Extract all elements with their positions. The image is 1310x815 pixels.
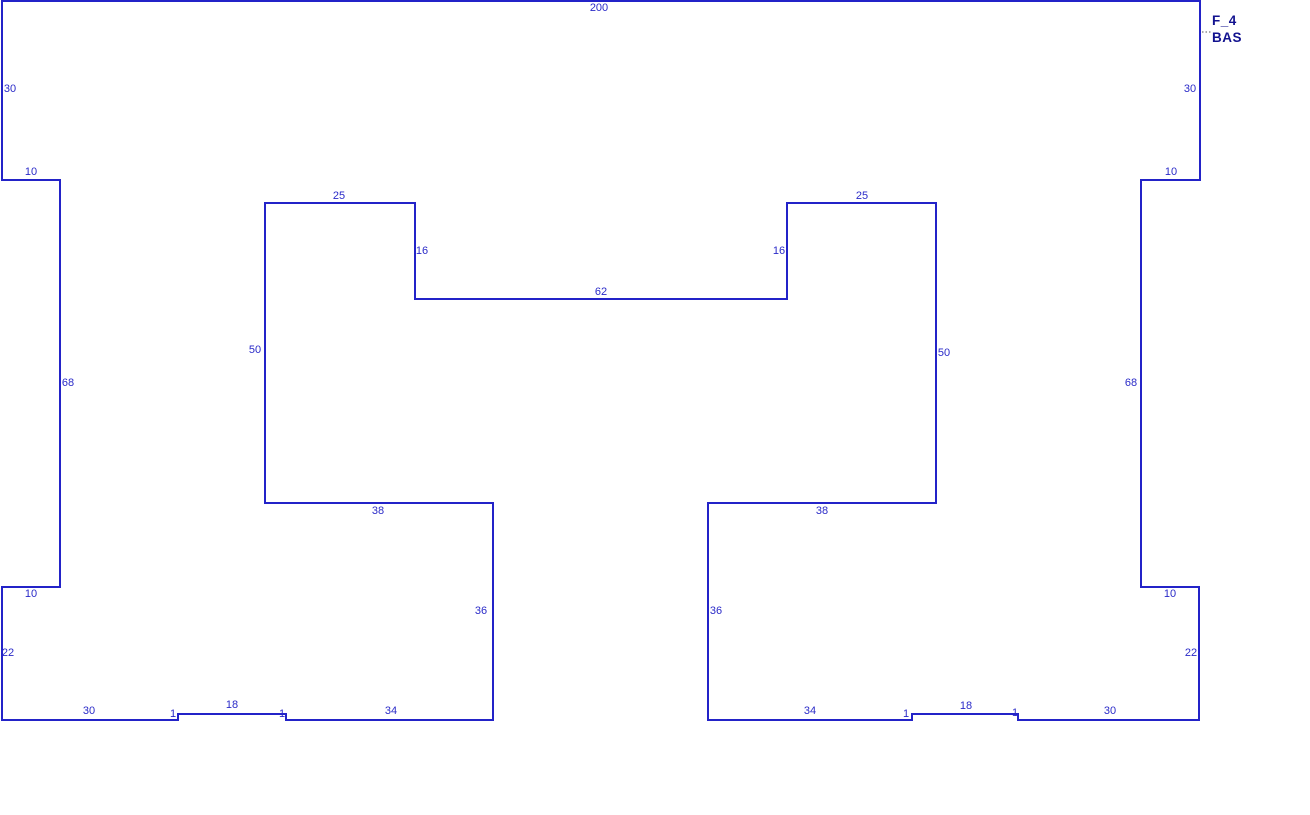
dimension-label: 38 [372,505,384,517]
dimension-label: 30 [1184,83,1196,95]
dimension-label: 34 [385,705,397,717]
dimension-label: 1 [279,708,285,720]
dimension-labels-group: 2003010681022301068102225165038362516503… [2,2,1197,720]
dimension-label: 10 [1165,166,1177,178]
dimension-label: 18 [226,699,238,711]
dimension-label: 68 [1125,377,1137,389]
dimension-label: 25 [333,190,345,202]
drawing-canvas: 2003010681022301068102225165038362516503… [0,0,1310,815]
dimension-label: 50 [249,344,261,356]
dimension-label: 36 [475,605,487,617]
dimension-label: 18 [960,700,972,712]
part-name-label: F_4 BAS [1212,12,1242,46]
dimension-label: 50 [938,347,950,359]
part-drawing: 2003010681022301068102225165038362516503… [0,0,1310,815]
dimension-label: 30 [4,83,16,95]
part-outline [2,1,1200,720]
dimension-label: 68 [62,377,74,389]
dimension-label: 36 [710,605,722,617]
part-name-line2: BAS [1212,29,1242,46]
dimension-label: 200 [590,2,608,14]
dimension-label: 1 [903,708,909,720]
part-name-line1: F_4 [1212,12,1242,29]
dimension-label: 10 [25,166,37,178]
dimension-label: 30 [83,705,95,717]
dimension-label: 1 [170,708,176,720]
dimension-label: 10 [1164,588,1176,600]
dimension-label: 1 [1012,707,1018,719]
dimension-label: 22 [2,647,14,659]
dimension-label: 22 [1185,647,1197,659]
dimension-label: 62 [595,286,607,298]
dimension-label: 25 [856,190,868,202]
dimension-label: 16 [416,245,428,257]
dimension-label: 16 [773,245,785,257]
dimension-label: 10 [25,588,37,600]
dimension-label: 38 [816,505,828,517]
dimension-label: 30 [1104,705,1116,717]
dimension-label: 34 [804,705,816,717]
